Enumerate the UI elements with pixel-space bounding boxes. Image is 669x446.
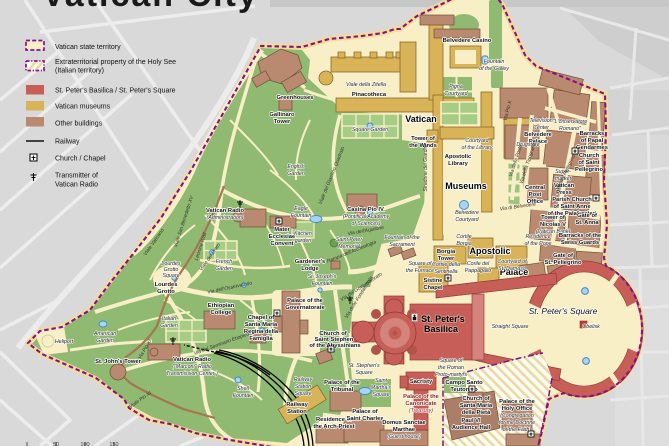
svg-text:Nicolas V: Nicolas V — [540, 222, 566, 228]
svg-text:Saint Peter: Saint Peter — [336, 237, 362, 243]
svg-text:Square of: Square of — [409, 261, 432, 267]
svg-text:Holy Office: Holy Office — [502, 406, 533, 412]
svg-text:Governatorate: Governatorate — [285, 305, 325, 311]
svg-text:of the Pope: of the Pope — [524, 241, 551, 247]
svg-text:Saint: Saint — [375, 378, 388, 384]
svg-text:(Administration): (Administration) — [206, 215, 243, 221]
svg-text:Swiss Guards: Swiss Guards — [561, 240, 599, 246]
svg-text:"L'Osservatore: "L'Osservatore — [553, 119, 588, 125]
svg-text:Square: Square — [372, 392, 389, 398]
svg-text:150: 150 — [109, 442, 118, 446]
svg-text:Barracks of the: Barracks of the — [559, 233, 602, 239]
svg-text:Square: Square — [294, 391, 311, 397]
svg-text:Square: Square — [162, 273, 179, 279]
svg-text:St. Joseph's: St. Joseph's — [308, 274, 337, 280]
svg-text:St. John's Tower: St. John's Tower — [95, 359, 141, 365]
svg-text:the Arch-Priest: the Arch-Priest — [313, 424, 354, 430]
svg-text:Palace of the: Palace of the — [287, 298, 324, 304]
svg-text:Tribunal: Tribunal — [331, 387, 354, 393]
svg-text:Post: Post — [529, 192, 542, 198]
svg-text:Railway: Railway — [286, 402, 308, 408]
svg-text:Station: Station — [295, 384, 312, 390]
svg-text:Palace of: Palace of — [352, 409, 378, 415]
svg-text:Gendarmes: Gendarmes — [576, 145, 608, 151]
svg-text:Railway: Railway — [55, 139, 80, 146]
svg-text:Regina della: Regina della — [244, 329, 279, 335]
svg-text:St. Stephen's: St. Stephen's — [348, 363, 380, 369]
svg-text:Sacrament: Sacrament — [389, 242, 415, 248]
svg-text:Italian: Italian — [162, 316, 176, 322]
svg-text:Church / Chapel: Church / Chapel — [55, 156, 106, 163]
svg-text:Sacristy: Sacristy — [410, 379, 433, 385]
svg-text:50: 50 — [53, 442, 59, 446]
svg-text:Railway: Railway — [294, 377, 313, 383]
svg-text:Tower: Tower — [274, 119, 291, 125]
svg-text:Gardener's: Gardener's — [295, 259, 325, 265]
svg-text:Campo Santo: Campo Santo — [445, 380, 483, 386]
svg-text:St. Damaso: St. Damaso — [498, 266, 526, 272]
svg-text:Barracks: Barracks — [580, 131, 605, 137]
svg-text:Parish Church: Parish Church — [552, 197, 592, 203]
svg-text:Kitchen: Kitchen — [294, 231, 312, 237]
svg-text:Chapel: Chapel — [423, 285, 443, 291]
svg-text:Martha's: Martha's — [371, 385, 391, 391]
svg-text:Casina Pio IV.: Casina Pio IV. — [347, 207, 385, 213]
svg-text:(Congregation: (Congregation — [500, 413, 534, 419]
svg-text:(Guest house): (Guest house) — [387, 434, 421, 440]
svg-text:Lodge: Lodge — [301, 266, 319, 272]
svg-text:100: 100 — [80, 442, 89, 446]
svg-text:for the Doctrine: for the Doctrine — [499, 420, 535, 426]
svg-text:Eagle: Eagle — [294, 206, 308, 212]
svg-text:Grotto: Grotto — [157, 289, 175, 295]
svg-text:("Marconi" Radio: ("Marconi" Radio — [172, 364, 212, 370]
svg-text:Convent: Convent — [270, 241, 293, 247]
svg-text:Center: Center — [533, 125, 549, 131]
svg-text:Gate of: Gate of — [553, 253, 573, 259]
svg-text:Ethiopian: Ethiopian — [208, 303, 235, 309]
svg-text:Fountain of the: Fountain of the — [384, 235, 419, 241]
svg-text:Domus Sanctae: Domus Sanctae — [382, 420, 426, 426]
svg-text:Sistine: Sistine — [423, 278, 443, 284]
svg-text:Mater: Mater — [274, 227, 290, 233]
svg-text:St. Peter's Square: St. Peter's Square — [529, 306, 598, 316]
svg-text:Fountain: Fountain — [291, 213, 312, 219]
svg-text:Courtyard: Courtyard — [465, 138, 489, 144]
svg-text:Obelisk: Obelisk — [582, 324, 600, 330]
svg-text:Shell: Shell — [237, 386, 250, 392]
svg-text:Saint Charles: Saint Charles — [346, 416, 383, 422]
svg-text:Garden: Garden — [287, 171, 305, 177]
svg-text:Fountain: Fountain — [312, 281, 333, 287]
svg-text:Square of: Square of — [440, 358, 463, 364]
svg-text:Vatican: Vatican — [405, 114, 437, 124]
svg-text:College: College — [211, 310, 233, 316]
svg-text:Church of: Church of — [462, 396, 489, 402]
svg-text:Pinacotheca: Pinacotheca — [352, 92, 387, 98]
svg-text:the Furnace: the Furnace — [406, 268, 434, 274]
svg-text:Lourdes: Lourdes — [155, 282, 178, 288]
svg-text:Central: Central — [525, 185, 545, 191]
svg-text:of the Library: of the Library — [462, 145, 493, 151]
svg-text:of Saint Anne: of Saint Anne — [553, 204, 591, 210]
svg-text:Fountain: Fountain — [484, 59, 505, 65]
svg-text:Corile del: Corile del — [467, 261, 490, 267]
svg-text:garden: garden — [295, 238, 312, 244]
svg-text:Pappagallo: Pappagallo — [465, 268, 492, 274]
svg-text:Borgia: Borgia — [456, 241, 471, 247]
svg-text:Garden: Garden — [160, 323, 178, 329]
svg-text:of the Faith): of the Faith) — [503, 427, 532, 433]
svg-text:Fountain: Fountain — [233, 393, 254, 399]
svg-text:(Treasury): (Treasury) — [409, 408, 433, 414]
svg-text:St. Pellegrino: St. Pellegrino — [544, 260, 582, 266]
svg-text:Santa Maria: Santa Maria — [245, 322, 278, 328]
svg-text:(Pontifical Academy: (Pontifical Academy — [343, 214, 390, 220]
svg-text:Vatican Radio: Vatican Radio — [206, 208, 244, 214]
svg-text:Station: Station — [287, 409, 307, 415]
svg-text:of Papal: of Papal — [581, 138, 604, 144]
svg-text:Vatican museums: Vatican museums — [55, 104, 111, 111]
svg-text:della Pietà: della Pietà — [462, 410, 491, 416]
svg-text:Pigna: Pigna — [449, 84, 463, 90]
svg-text:English: English — [287, 164, 304, 170]
svg-text:St. Peter's: St. Peter's — [421, 314, 465, 324]
svg-text:Television: Television — [529, 118, 552, 124]
svg-text:Canonicate: Canonicate — [405, 401, 437, 407]
svg-text:Belvedere: Belvedere — [524, 132, 552, 138]
svg-text:Paul VI: Paul VI — [461, 418, 481, 424]
svg-text:Vatican state territory: Vatican state territory — [55, 44, 121, 51]
svg-text:Courtyard: Courtyard — [444, 91, 468, 97]
svg-text:Apostolic: Apostolic — [469, 246, 510, 256]
svg-text:Courtyard of: Courtyard of — [497, 259, 527, 265]
svg-text:Viale della Zitella: Viale della Zitella — [346, 82, 386, 88]
svg-text:Apostolic: Apostolic — [445, 154, 472, 160]
svg-text:Garden: Garden — [96, 338, 114, 344]
svg-text:(Italian territory): (Italian territory) — [55, 68, 104, 75]
svg-text:Basilica: Basilica — [424, 324, 459, 334]
svg-text:Courtyard: Courtyard — [455, 217, 479, 223]
svg-text:Vatican Radio: Vatican Radio — [55, 182, 98, 189]
svg-text:Extraterritorial property of t: Extraterritorial property of the Holy Se… — [55, 59, 176, 66]
svg-text:Gallinaro: Gallinaro — [269, 112, 295, 118]
svg-text:Cortile della: Cortile della — [432, 262, 460, 268]
svg-text:Palace of the: Palace of the — [324, 380, 361, 386]
svg-text:Garden: Garden — [215, 266, 233, 272]
svg-text:Vatican Radio: Vatican Radio — [173, 357, 211, 363]
svg-text:Stradone dei Giardini: Stradone dei Giardini — [423, 144, 429, 192]
svg-text:of the Abyssinians: of the Abyssinians — [309, 343, 360, 349]
svg-text:Museums: Museums — [445, 181, 487, 191]
svg-text:Famiglia: Famiglia — [249, 336, 273, 342]
svg-text:Greenhouses: Greenhouses — [276, 95, 313, 101]
svg-text:Pellegrino: Pellegrino — [575, 167, 603, 173]
svg-text:Square: Square — [355, 370, 372, 376]
svg-text:Gate of: Gate of — [577, 213, 597, 219]
svg-text:Belvedere: Belvedere — [455, 210, 479, 216]
svg-text:Transmission Center ): Transmission Center ) — [166, 371, 218, 377]
svg-text:Belvedere Casino: Belvedere Casino — [443, 38, 492, 44]
svg-text:Tower of: Tower of — [411, 136, 435, 142]
svg-text:Palace of the: Palace of the — [499, 399, 536, 405]
svg-text:Vatican City: Vatican City — [42, 0, 259, 14]
svg-text:Santa Maria: Santa Maria — [460, 403, 493, 409]
svg-text:of the Galley: of the Galley — [479, 66, 509, 72]
svg-text:Cortile: Cortile — [456, 234, 471, 240]
svg-text:St. Anna: St. Anna — [575, 220, 599, 226]
svg-text:Transmitter of: Transmitter of — [55, 173, 98, 180]
svg-text:Tower of: Tower of — [541, 215, 565, 221]
svg-text:St. Peter's Basilica / St. Pet: St. Peter's Basilica / St. Peter's Squar… — [55, 88, 176, 95]
svg-text:Square Garden: Square Garden — [352, 127, 388, 133]
svg-text:of Saint: of Saint — [578, 160, 599, 166]
svg-text:Other buildings: Other buildings — [55, 121, 103, 128]
svg-text:Library: Library — [448, 161, 468, 167]
svg-text:Church: Church — [579, 153, 600, 159]
svg-text:Chapel of: Chapel of — [248, 315, 274, 321]
svg-text:Audience Hall: Audience Hall — [452, 425, 491, 431]
svg-text:French: French — [216, 259, 233, 265]
svg-text:Ecclesiae: Ecclesiae — [269, 234, 296, 240]
svg-text:Palace of the: Palace of the — [403, 394, 440, 400]
svg-text:Straight Square: Straight Square — [492, 324, 529, 330]
svg-text:Proto-martyrs: Proto-martyrs — [435, 372, 467, 378]
svg-text:the Roman: the Roman — [438, 365, 464, 371]
svg-text:Borgia: Borgia — [437, 249, 456, 255]
svg-text:American: American — [93, 331, 116, 337]
svg-text:Marthae: Marthae — [393, 427, 416, 433]
svg-text:Sentinella: Sentinella — [434, 269, 457, 275]
svg-text:Heliport: Heliport — [55, 339, 74, 345]
